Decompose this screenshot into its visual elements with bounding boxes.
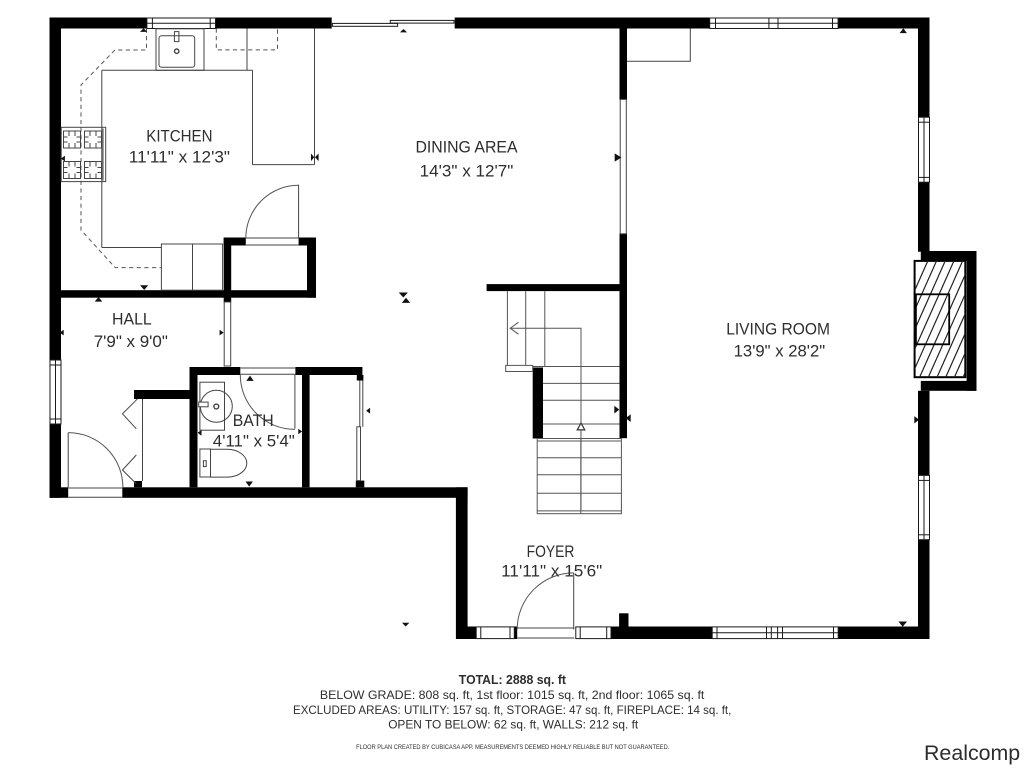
svg-text:EXCLUDED AREAS: UTILITY: 157 s: EXCLUDED AREAS: UTILITY: 157 sq. ft, STO… [293, 703, 731, 717]
svg-text:BELOW GRADE: 808 sq. ft, 1st f: BELOW GRADE: 808 sq. ft, 1st floor: 1015… [320, 688, 705, 702]
svg-text:KITCHEN: KITCHEN [146, 127, 212, 146]
svg-text:BATH: BATH [233, 411, 274, 430]
svg-text:OPEN TO BELOW: 62 sq. ft, WALL: OPEN TO BELOW: 62 sq. ft, WALLS: 212 sq.… [388, 717, 639, 731]
svg-text:TOTAL: 2888 sq. ft: TOTAL: 2888 sq. ft [459, 672, 567, 687]
svg-text:Realcomp: Realcomp [924, 742, 1020, 765]
svg-text:FLOOR PLAN CREATED BY CUBICASA: FLOOR PLAN CREATED BY CUBICASA APP. MEAS… [356, 744, 669, 751]
svg-text:13'9" x 28'2": 13'9" x 28'2" [734, 341, 826, 360]
svg-text:FOYER: FOYER [527, 542, 575, 561]
svg-text:LIVING ROOM: LIVING ROOM [726, 320, 830, 339]
svg-text:11'11" x 12'3": 11'11" x 12'3" [129, 148, 230, 167]
svg-text:4'11" x 5'4": 4'11" x 5'4" [213, 431, 295, 450]
svg-text:14'3" x 12'7": 14'3" x 12'7" [420, 162, 514, 181]
svg-text:HALL: HALL [112, 310, 152, 329]
svg-text:11'11" x 15'6": 11'11" x 15'6" [501, 562, 602, 581]
svg-text:DINING AREA: DINING AREA [415, 138, 518, 157]
svg-text:7'9" x 9'0": 7'9" x 9'0" [94, 332, 168, 351]
